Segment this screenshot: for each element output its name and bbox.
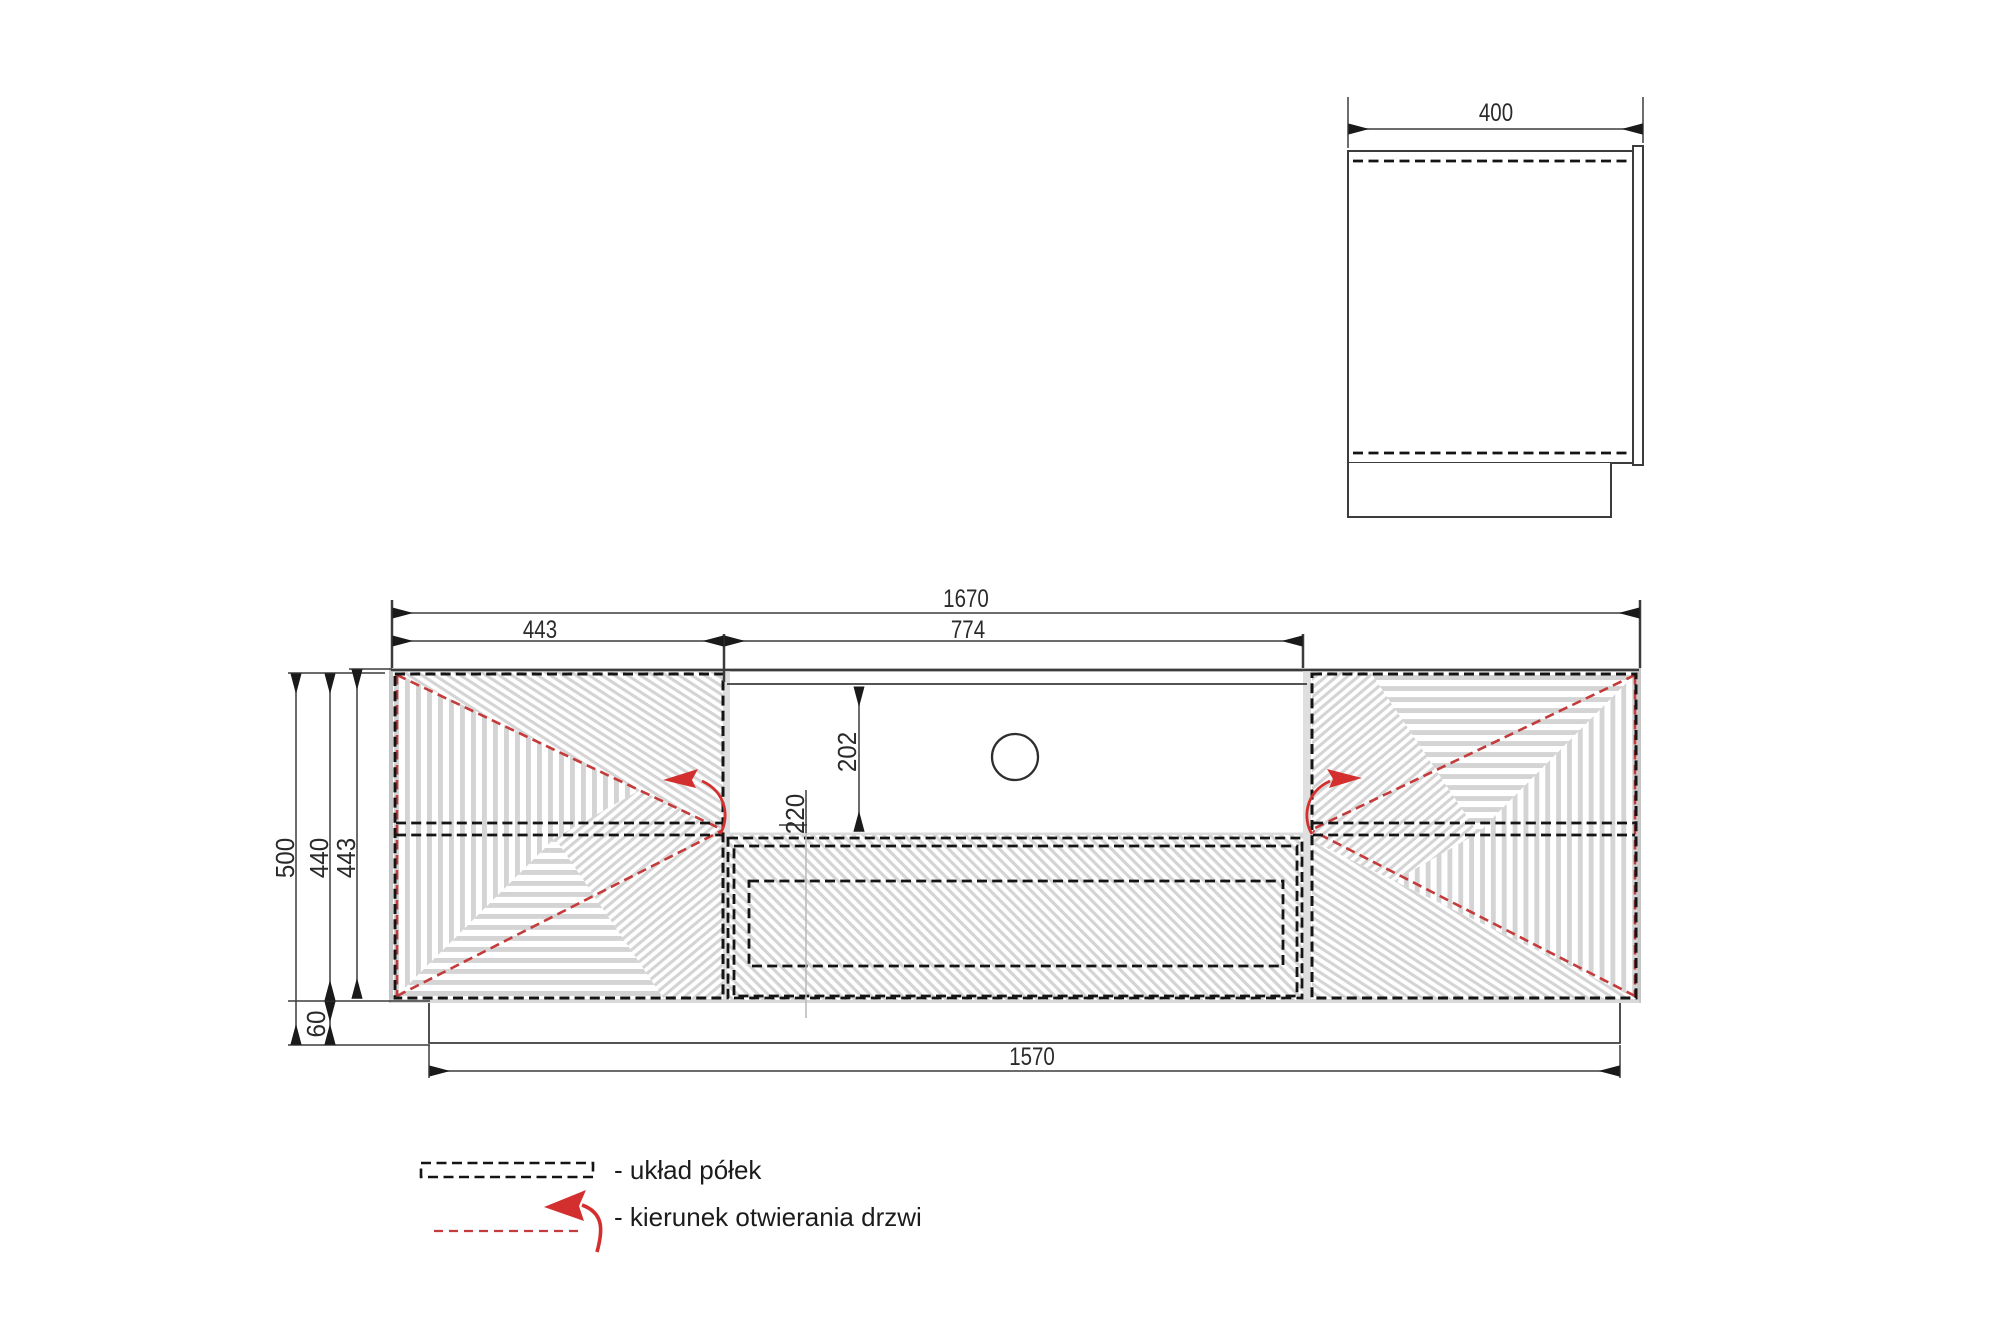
svg-text:443: 443 <box>332 838 361 878</box>
svg-text:- układ półek: - układ półek <box>614 1155 762 1185</box>
svg-text:440: 440 <box>305 838 334 878</box>
svg-text:500: 500 <box>271 838 300 878</box>
svg-text:202: 202 <box>833 732 862 772</box>
svg-text:- kierunek otwierania drzwi: - kierunek otwierania drzwi <box>614 1202 922 1232</box>
svg-text:400: 400 <box>1479 98 1513 126</box>
svg-text:1570: 1570 <box>1009 1042 1055 1070</box>
svg-text:60: 60 <box>302 1011 331 1038</box>
svg-text:220: 220 <box>781 794 810 834</box>
svg-text:1670: 1670 <box>943 584 989 612</box>
svg-text:774: 774 <box>951 615 985 643</box>
svg-text:443: 443 <box>523 615 557 643</box>
